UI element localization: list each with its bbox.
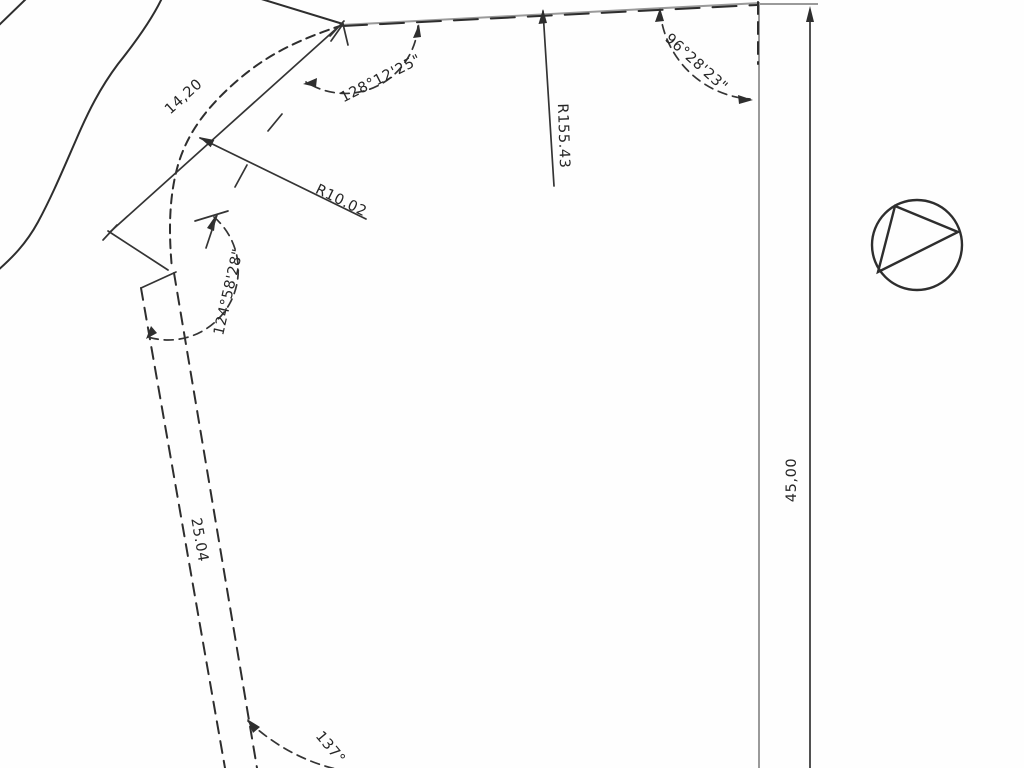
arrowhead: [738, 95, 753, 104]
dim-label-14-20: 14,20: [162, 76, 206, 118]
arrowhead: [806, 6, 814, 22]
tick-mark: [103, 225, 117, 240]
tick-mark: [206, 215, 217, 248]
angle-label-124: 124°58'28": [211, 247, 246, 337]
angle-label-137: 137°: [312, 729, 348, 768]
tick-mark: [195, 211, 228, 221]
terrain-lines: [0, 0, 343, 272]
leader-line: [543, 11, 554, 186]
angle-arc-96: [655, 8, 753, 104]
tick-mark: [343, 24, 348, 45]
boundary-fillet-curve: [170, 25, 343, 269]
arrowhead: [247, 719, 260, 733]
radius-label-r10: R10.02: [313, 182, 370, 221]
road-edge-right: [174, 273, 257, 768]
north-symbol-triangle: [878, 206, 958, 272]
survey-plot-drawing: 14,20 128°12'25" 96°28'23" R155.43 R10.0…: [0, 0, 1024, 768]
property-boundary: [170, 2, 760, 768]
terrain-corner-segment: [0, 0, 28, 27]
witness-line: [108, 231, 168, 270]
boundary-top-line-gray: [341, 3, 760, 25]
angle-arc: [660, 10, 750, 99]
angle-label-96: 96°28'23": [661, 31, 730, 96]
dim-label-25-04: 25.04: [187, 517, 210, 564]
annotation-labels: 14,20 128°12'25" 96°28'23" R155.43 R10.0…: [162, 31, 800, 768]
radius-label-r155: R155.43: [554, 103, 572, 169]
dimension-14-20: [103, 21, 344, 240]
road-edge-left: [141, 288, 225, 768]
neighbour-boundary-segment: [258, 0, 343, 24]
arrowhead: [413, 24, 421, 38]
survey-drawing-canvas: 14,20 128°12'25" 96°28'23" R155.43 R10.0…: [0, 0, 1024, 768]
arrowhead: [303, 78, 317, 87]
tick-mark: [268, 114, 282, 131]
dim-label-45-00: 45,00: [784, 458, 800, 503]
radius-leader-r155: [539, 9, 555, 186]
terrain-squiggle-line: [0, 0, 163, 272]
north-symbol: [872, 200, 962, 290]
tick-mark: [235, 165, 247, 187]
dimension-45-00: [760, 4, 818, 768]
dimension-line: [110, 28, 337, 232]
boundary-top-line-dashed: [343, 5, 757, 26]
road-edges: [108, 231, 257, 768]
angle-label-128: 128°12'25": [338, 52, 424, 106]
road-end-cap: [141, 272, 176, 288]
